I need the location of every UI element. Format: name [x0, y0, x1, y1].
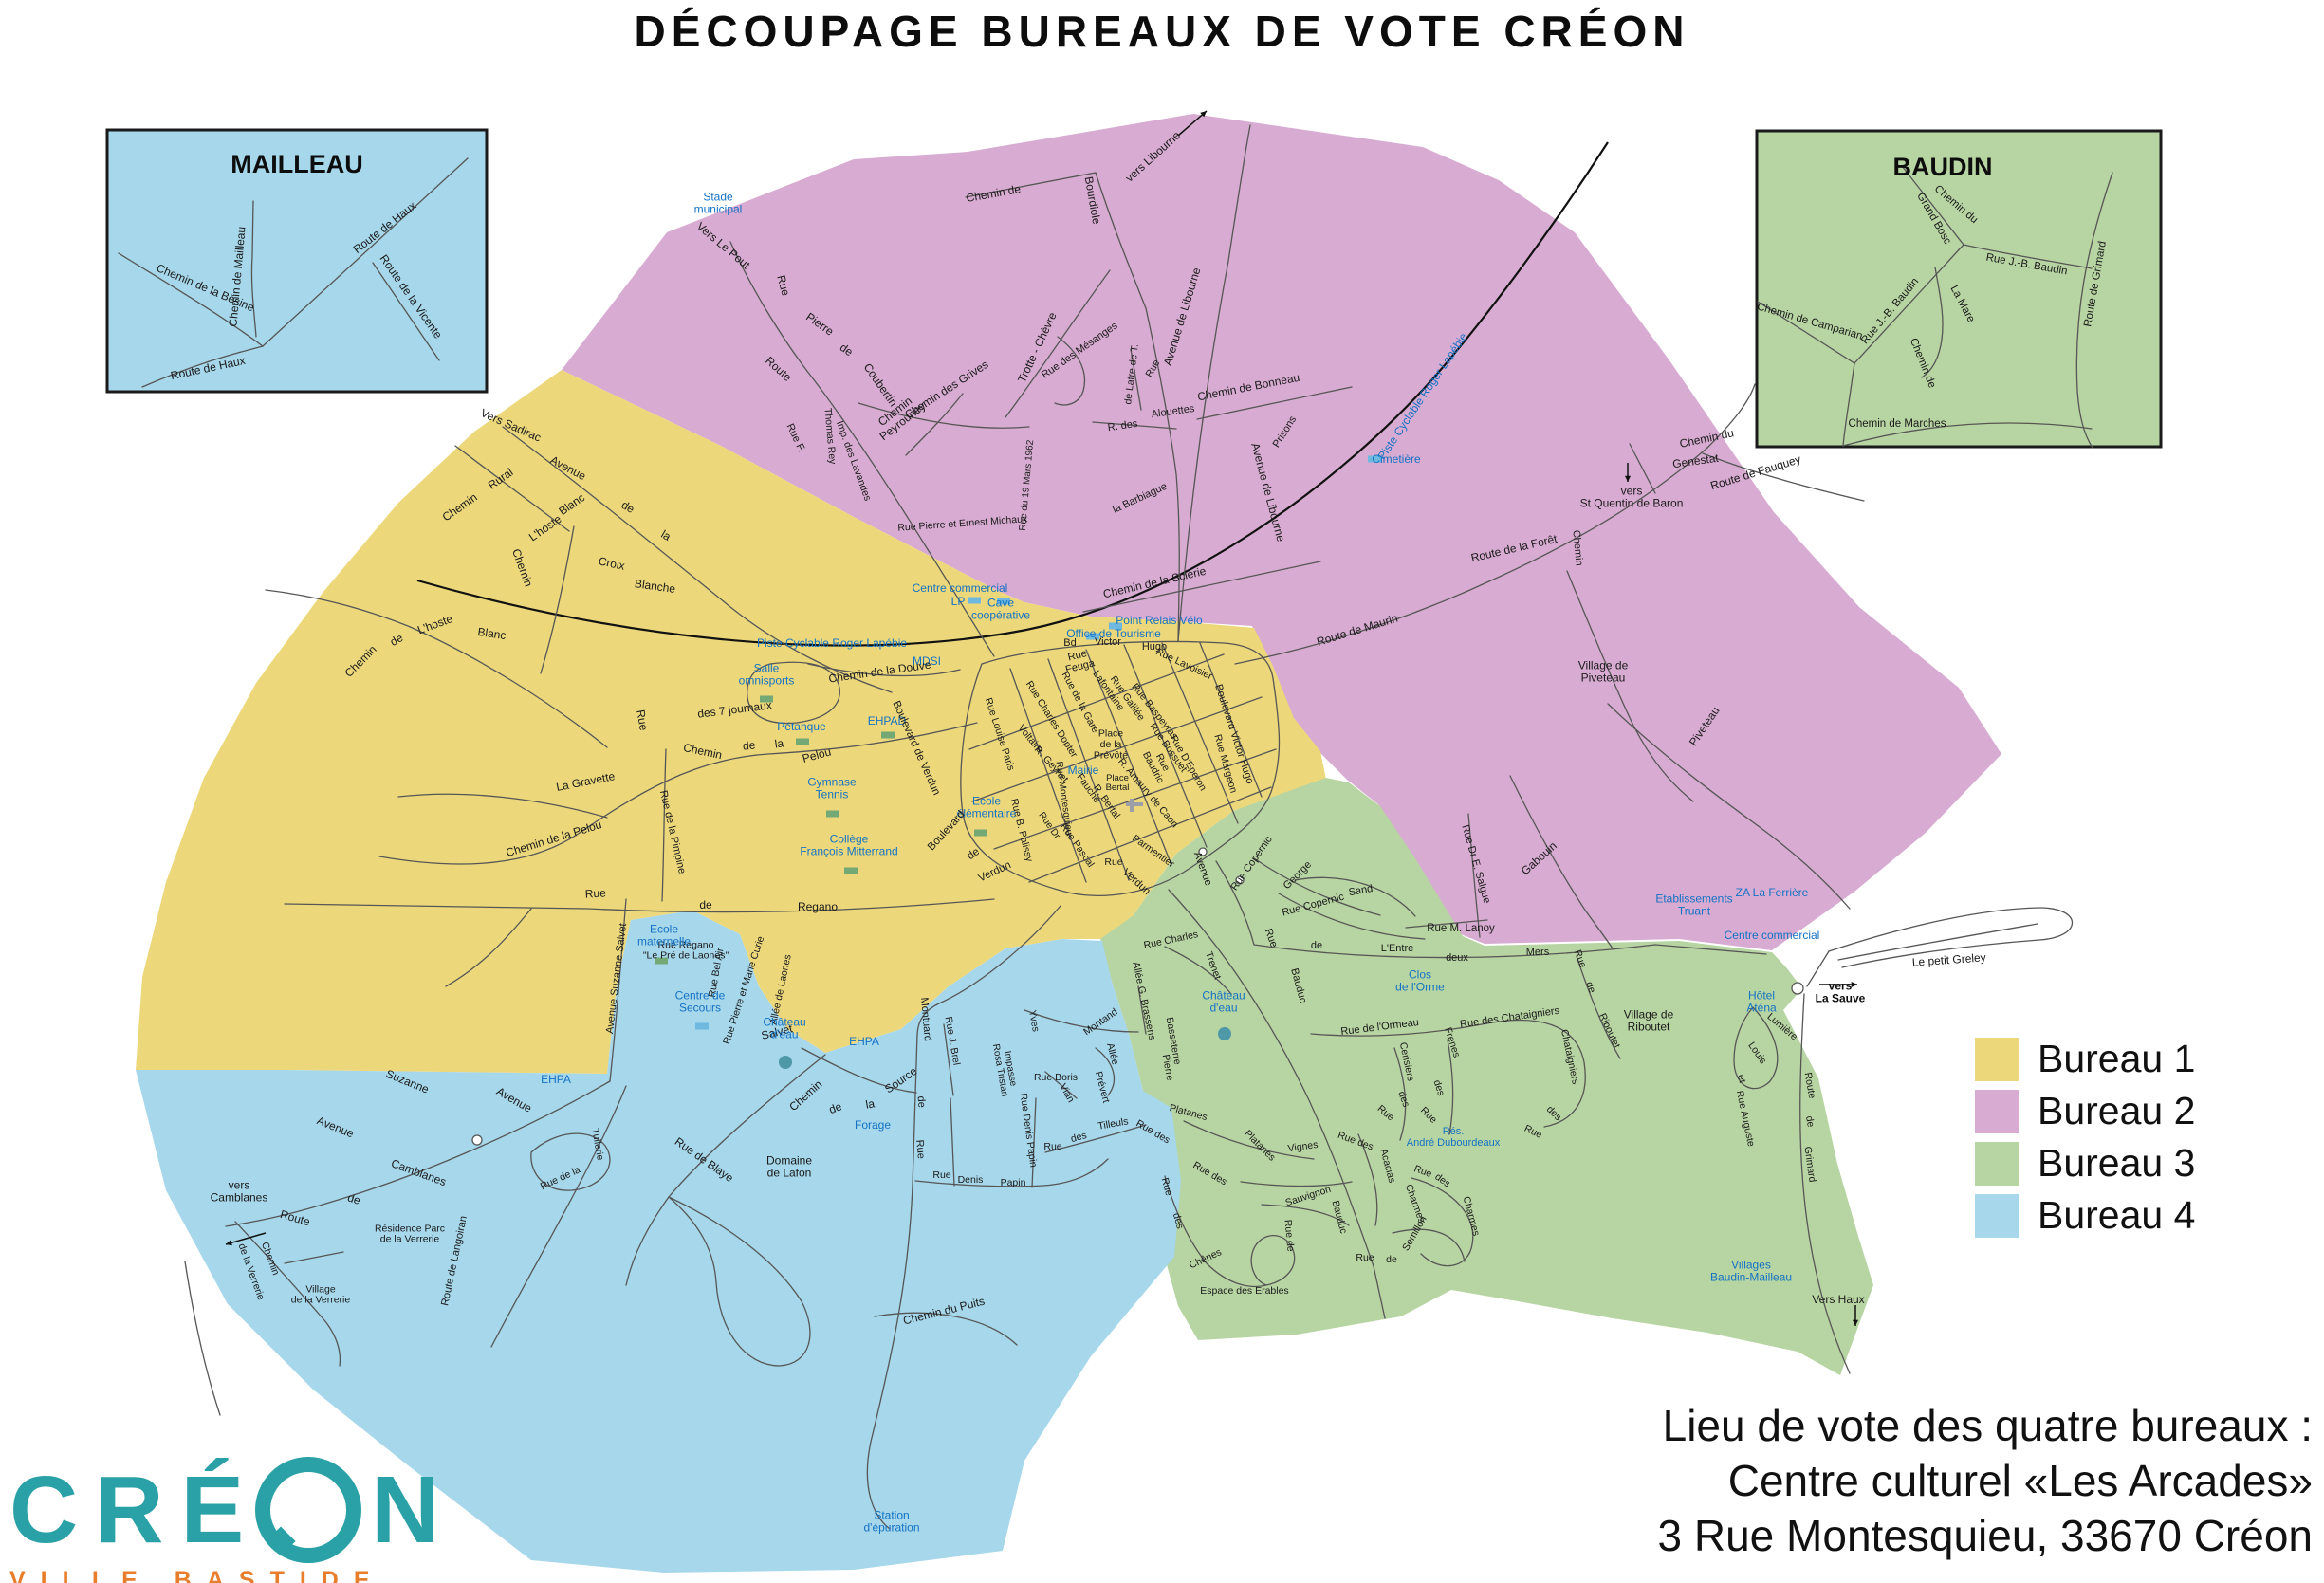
street-label: de: [742, 738, 756, 752]
facility-marker: [844, 868, 858, 874]
legend-item-bureau-1: Bureau 1: [1975, 1037, 2195, 1081]
map-title-label: versLa Sauve: [1816, 980, 1866, 1005]
logo-o-icon: [255, 1457, 361, 1563]
legend-item-bureau-3: Bureau 3: [1975, 1141, 2195, 1186]
street-label: Rue: [1356, 1252, 1374, 1263]
street-label: Rue M. Lanoy: [1427, 923, 1495, 934]
facility-marker: [796, 739, 809, 745]
voting-place-line: Centre culturel «Les Arcades»: [1658, 1453, 2313, 1508]
voting-place-line: Lieu de vote des quatre bureaux :: [1658, 1398, 2313, 1453]
street-label: Vers Haux: [1812, 1293, 1864, 1306]
logo-letter: R: [95, 1463, 180, 1557]
street-label: Denis: [958, 1174, 984, 1186]
facility-label: Forage: [855, 1118, 891, 1132]
logo-letter: É: [180, 1463, 261, 1557]
legend-label: Bureau 2: [2038, 1089, 2195, 1133]
legend-swatch: [1975, 1142, 2019, 1186]
road-line: [1807, 951, 1829, 986]
legend-label: Bureau 4: [2038, 1193, 2195, 1238]
map-canvas: MAILLEAUChemin de MailleauChemin de la B…: [0, 0, 2324, 1583]
street-label: de: [914, 1095, 927, 1108]
street-label: Rue: [932, 1169, 950, 1181]
facility-label: Centre commercial: [1725, 929, 1820, 942]
street-label: de: [1386, 1254, 1397, 1265]
street-label: Domainede Lafon: [766, 1154, 812, 1180]
creon-logo-word: CRÉN: [9, 1457, 456, 1563]
street-label: de: [1311, 940, 1322, 951]
road-line: [185, 1261, 220, 1415]
legend-item-bureau-2: Bureau 2: [1975, 1089, 2195, 1133]
legend-swatch: [1975, 1194, 2019, 1238]
map-title-label: MAILLEAU: [231, 150, 362, 178]
facility-label: EHPA: [849, 1035, 879, 1048]
logo-letter: C: [9, 1463, 95, 1557]
legend-label: Bureau 3: [2038, 1141, 2195, 1186]
voting-place-line: 3 Rue Montesquieu, 33670 Créon: [1658, 1508, 2313, 1563]
facility-marker: [968, 598, 981, 604]
facility-marker: [695, 1023, 709, 1030]
roundabout-marker: [472, 1135, 482, 1145]
street-label: Le petit Greley: [1911, 950, 1986, 968]
street-label: Résidence Parcde la Verrerie: [375, 1223, 445, 1244]
facility-label: EHPA: [541, 1073, 571, 1086]
facility-label: LP: [951, 595, 966, 608]
facility-label: Stademunicipal: [694, 191, 743, 216]
street-label: Bd: [1063, 637, 1076, 649]
street-label: Village dePiveteau: [1578, 659, 1629, 685]
street-label: Rue: [1104, 856, 1122, 868]
facility-label: HôtelAténa: [1746, 989, 1777, 1015]
street-label: Chemin de Marches: [1849, 418, 1946, 430]
map-title-label: BAUDIN: [1893, 153, 1993, 181]
facility-label: Pétanque: [777, 720, 826, 733]
creon-logo: CRÉN VILLE BASTIDE: [9, 1457, 456, 1583]
creon-logo-tagline: VILLE BASTIDE: [9, 1567, 456, 1583]
street-label: Regano: [798, 900, 838, 913]
legend: Bureau 1Bureau 2Bureau 3Bureau 4: [1975, 1037, 2195, 1245]
street-label: de: [1803, 1115, 1817, 1129]
logo-letter: N: [371, 1463, 456, 1557]
street-label: Espace des Erables: [1200, 1285, 1288, 1297]
street-label: Mers: [1526, 947, 1550, 958]
street-label: PlaceBertal: [1106, 773, 1130, 793]
street-label: Papin: [1001, 1177, 1026, 1188]
legend-swatch: [1975, 1038, 2019, 1081]
facility-marker: [826, 811, 839, 818]
roundabout-marker: [1792, 983, 1803, 994]
legend-item-bureau-4: Bureau 4: [1975, 1193, 2195, 1238]
logo-diamond-icon: [267, 1526, 296, 1555]
facility-marker: [974, 830, 987, 837]
street-label: Victor: [1095, 636, 1121, 648]
legend-label: Bureau 1: [2038, 1037, 2195, 1081]
water-tower-marker: [779, 1056, 792, 1069]
street-label: deux: [1446, 952, 1468, 964]
street-label: L'Entre: [1381, 943, 1414, 954]
street-label: Rue Boris: [1034, 1072, 1078, 1083]
facility-label: Point Relais Vélo: [1116, 614, 1203, 627]
water-tower-marker: [1218, 1027, 1231, 1040]
facility-marker: [881, 732, 895, 739]
facility-label: ZA La Ferrière: [1736, 886, 1809, 899]
facility-label: Piste Cyclable Roger Lapébie: [757, 636, 907, 650]
legend-swatch: [1975, 1090, 2019, 1133]
street-label: de: [699, 898, 712, 911]
street-label: Rue: [1043, 1141, 1061, 1152]
voting-districts-map-poster: DÉCOUPAGE BUREAUX DE VOTE CRÉON MAILLEAU…: [0, 0, 2324, 1583]
facility-label: Centre commercial: [913, 581, 1008, 595]
voting-place-note: Lieu de vote des quatre bureaux : Centre…: [1658, 1398, 2313, 1563]
street-label: Rue: [913, 1139, 927, 1159]
facility-label: Centre deSecours: [675, 989, 726, 1015]
street-label: Rue: [584, 886, 606, 900]
street-label: Village deRiboutet: [1624, 1008, 1674, 1034]
